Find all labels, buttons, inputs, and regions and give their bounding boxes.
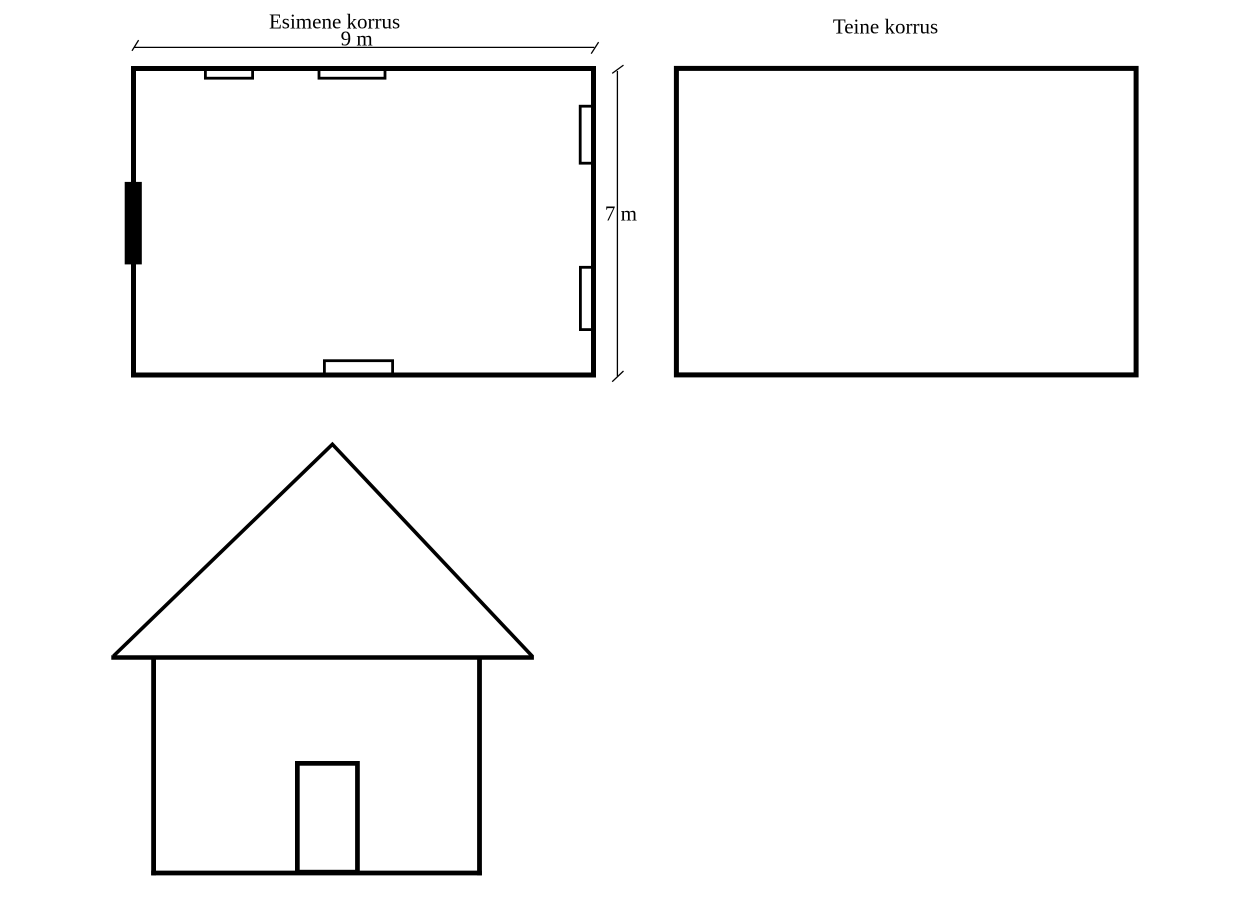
- svg-text:Esimene korrus: Esimene korrus: [269, 10, 400, 34]
- svg-text:7 m: 7 m: [605, 202, 637, 226]
- svg-text:Teine korrus: Teine korrus: [833, 15, 938, 39]
